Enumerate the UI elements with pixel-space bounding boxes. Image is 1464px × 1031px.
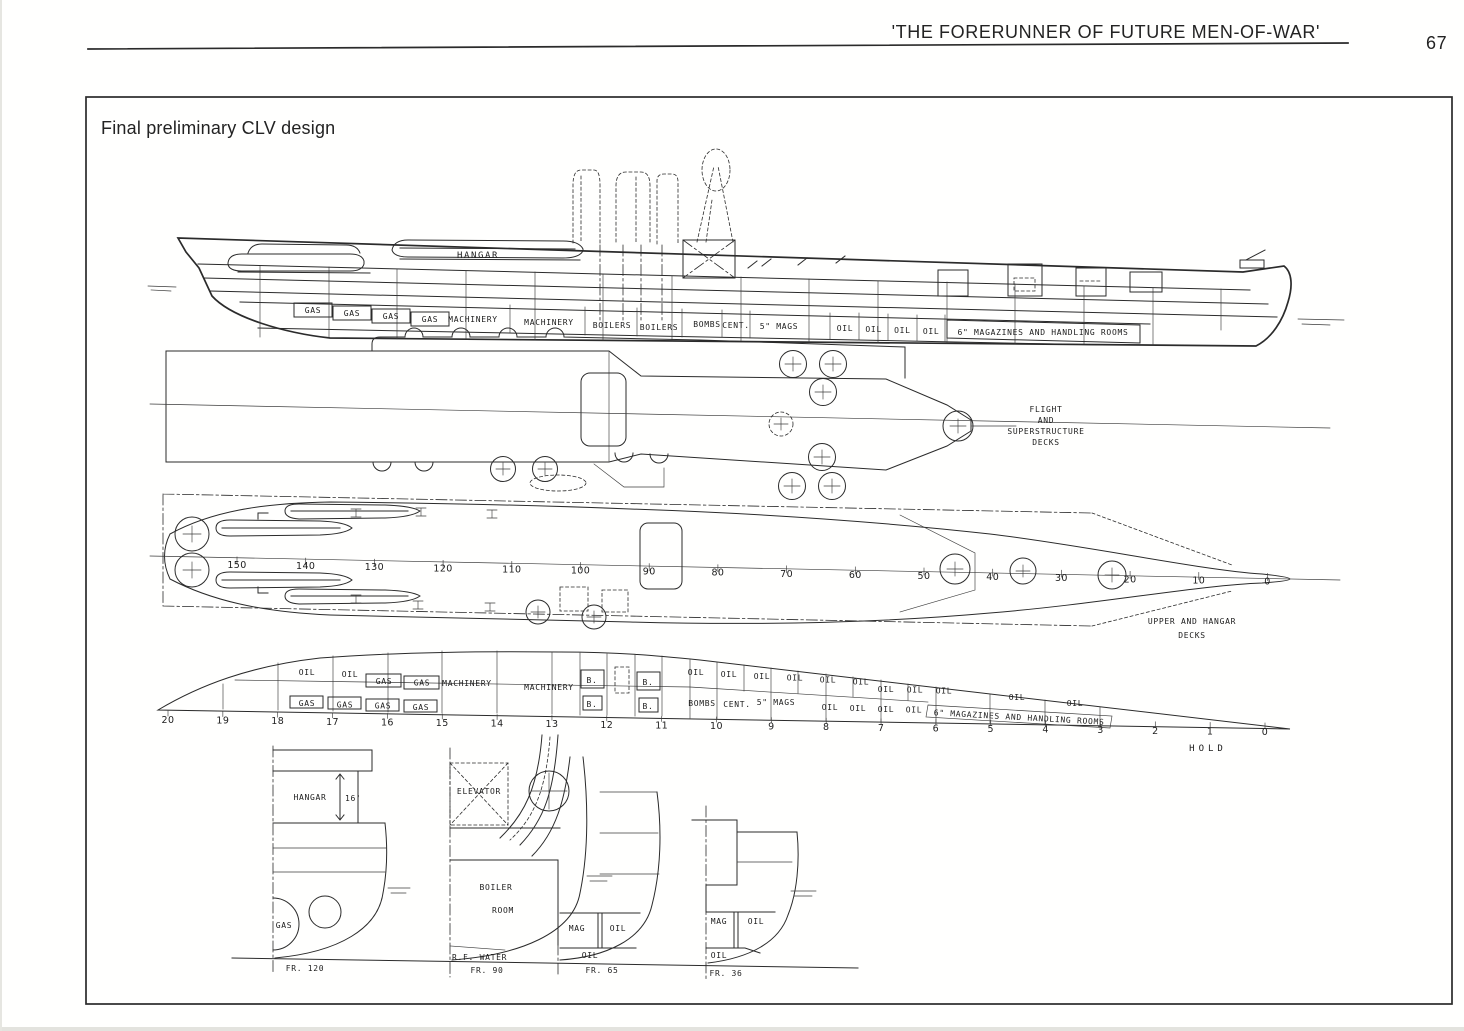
hold-oil-label: OIL	[878, 685, 895, 694]
side-profile-view: HANGAR GASGASGASGAS MACHINERY MACHINERY …	[148, 149, 1344, 346]
hold-oil-label: OIL	[850, 704, 867, 713]
header-rule	[88, 43, 1348, 49]
page-number: 67	[1426, 33, 1447, 53]
profile-machinery-label: MACHINERY	[524, 318, 574, 327]
mast-legs	[697, 166, 733, 242]
frame-number: 110	[502, 564, 521, 575]
hold-oil-label: OIL	[754, 672, 771, 681]
section-frame-label: FR. 36	[709, 969, 742, 978]
hold-gas-label: GAS	[414, 679, 431, 688]
scanned-book-page: 'THE FORERUNNER OF FUTURE MEN-OF-WAR' 67…	[0, 0, 1464, 1031]
hull-plan-outline	[165, 502, 1291, 623]
hold-oil-row1-labels: OILOILOILOILOILOIL	[688, 668, 870, 687]
hold-oil-label: OIL	[688, 668, 705, 677]
section-oil-label: OIL	[711, 951, 728, 960]
section-oil-label: OIL	[610, 924, 627, 933]
section-fr65: MAG OIL OIL FR. 65	[558, 792, 660, 975]
section-fr90: ELEVATOR BOILER ROOM R.F. WATER FR. 90	[450, 735, 612, 977]
section-elevator-label: ELEVATOR	[457, 787, 501, 796]
hold-gas-label: GAS	[337, 700, 354, 709]
hold-gas-label: GAS	[413, 703, 430, 712]
frame-number: 100	[571, 566, 590, 577]
profile-boilers-label: BOILERS	[593, 321, 632, 330]
header-title: 'THE FORERUNNER OF FUTURE MEN-OF-WAR'	[892, 22, 1320, 42]
frame-number: 19	[216, 716, 229, 727]
flight-deck-label: SUPERSTRUCTURE	[1007, 427, 1084, 436]
frame-number: 10	[1192, 575, 1205, 586]
profile-oil-label: OIL	[837, 324, 854, 333]
frame-number: 70	[780, 569, 793, 580]
bow-gun-circles	[940, 554, 1126, 589]
frame-number: 14	[491, 719, 504, 730]
frame-number: 1	[1207, 726, 1213, 737]
frame-number: 120	[433, 563, 452, 574]
hold-plan: OILOIL GASGAS GASGASGASGAS MACHINERY MAC…	[158, 651, 1290, 754]
frame-number: 16	[381, 717, 394, 728]
hold-gas-label: GAS	[299, 699, 316, 708]
profile-oil-label: OIL	[894, 326, 911, 335]
hold-machinery-label: MACHINERY	[442, 679, 492, 688]
profile-gas-label: GAS	[344, 309, 361, 318]
waterline-marks	[148, 286, 1344, 325]
flight-deck-projection	[163, 494, 1092, 626]
superstructure-chevron	[900, 515, 975, 612]
figure-caption: Final preliminary CLV design	[101, 118, 335, 138]
hold-b-label: B.	[586, 700, 597, 709]
hold-oil-label: OIL	[299, 668, 316, 677]
hold-oil-label: OIL	[878, 705, 895, 714]
boats-plan	[216, 504, 420, 604]
profile-hangar-label: HANGAR	[457, 251, 499, 261]
frame-number: 150	[227, 560, 246, 571]
hold-gas-upper-labels: GASGAS	[376, 677, 431, 688]
hold-label: HOLD	[1189, 744, 1227, 754]
flight-deck-plan: FLIGHT AND SUPERSTRUCTURE DECKS	[150, 328, 1330, 500]
masthead-top	[702, 149, 730, 191]
frame-number: 20	[162, 715, 175, 726]
cross-sections: HANGAR 16' GAS FR. 120 ELEVATOR BOILER R…	[232, 735, 858, 981]
profile-gas-label: GAS	[305, 306, 322, 315]
elevator-opening	[581, 373, 626, 446]
hold-oil-row2-labels: OILOILOILOIL	[822, 703, 923, 715]
section-mag-label: MAG	[711, 917, 728, 926]
hold-oil-label: OIL	[721, 670, 738, 679]
hold-cent-label: CENT.	[723, 700, 751, 709]
hold-5in-mags-label: 5" MAGS	[757, 698, 796, 707]
flight-deck-outline	[166, 351, 971, 470]
hold-gas-lower-labels: GASGASGASGAS	[299, 699, 430, 712]
frame-number: 0	[1264, 577, 1270, 588]
frame-number: 3	[1097, 725, 1103, 736]
frame-number: 40	[986, 572, 999, 583]
frame-number: 10	[710, 721, 723, 732]
upper-deck-label: DECKS	[1178, 631, 1206, 640]
section-height-label: 16'	[345, 794, 362, 803]
section-frame-label: FR. 90	[470, 966, 503, 975]
profile-6in-mags-label: 6" MAGAZINES AND HANDLING ROOMS	[957, 328, 1128, 337]
section-gas-label: GAS	[276, 921, 293, 930]
frame-number: 80	[711, 568, 724, 579]
scan-edge-bottom	[0, 1027, 1464, 1031]
hold-oil-label: OIL	[787, 674, 804, 683]
hold-oil-label: OIL	[1009, 693, 1026, 702]
profile-oil-label: OIL	[865, 325, 882, 334]
frame-number: 17	[326, 717, 339, 728]
clv-design-figure: 'THE FORERUNNER OF FUTURE MEN-OF-WAR' 67…	[0, 0, 1464, 1031]
frame-number: 18	[271, 716, 284, 727]
hold-gas-label: GAS	[375, 702, 392, 711]
profile-cent-label: CENT.	[722, 321, 750, 330]
profile-boilers-label: BOILERS	[640, 323, 679, 332]
hold-oil-label: OIL	[936, 686, 953, 695]
hold-bombs-label: BOMBS	[688, 699, 716, 708]
flight-deck-label: FLIGHT	[1029, 405, 1062, 414]
section-rf-water-label: R.F. WATER	[452, 953, 507, 962]
frame-number: 0	[1262, 727, 1268, 738]
hold-machinery-label: MACHINERY	[524, 683, 574, 692]
frame-number: 12	[600, 720, 613, 731]
frame-number: 50	[918, 571, 931, 582]
profile-gas-label: GAS	[422, 315, 439, 324]
upper-deck-label: UPPER AND HANGAR	[1148, 617, 1236, 626]
flight-deck-label: DECKS	[1032, 438, 1060, 447]
profile-gas-label: GAS	[383, 312, 400, 321]
frame-number: 8	[823, 722, 829, 733]
hold-b-lower-labels: B.B.	[586, 700, 653, 711]
profile-bombs-label: BOMBS	[693, 320, 721, 329]
frame-number: 2	[1152, 726, 1158, 737]
hold-b-label: B.	[586, 676, 597, 685]
frame-number: 4	[1042, 725, 1048, 736]
hold-oil-label: OIL	[1067, 699, 1084, 708]
hold-b-label: B.	[642, 702, 653, 711]
hold-b-label: B.	[642, 678, 653, 687]
frame-number: 9	[768, 722, 774, 733]
gun-circles	[491, 351, 974, 500]
frame-number: 20	[1124, 574, 1137, 585]
hold-oil-label: OIL	[906, 706, 923, 715]
centerline	[150, 404, 1330, 428]
section-mag-label: MAG	[569, 924, 586, 933]
frame-number: 15	[436, 718, 449, 729]
frame-number: 6	[933, 723, 939, 734]
profile-machinery-label: MACHINERY	[448, 315, 498, 324]
forecastle-structures	[748, 250, 1265, 296]
frame-number: 13	[546, 719, 559, 730]
funnels-and-mast	[573, 149, 735, 322]
hold-oil-label: OIL	[342, 670, 359, 679]
profile-5in-mags-label: 5" MAGS	[760, 322, 799, 331]
hold-oil-label: OIL	[853, 678, 870, 687]
frame-numbers-hold: 20191817161514131211109876543210	[162, 711, 1269, 738]
section-fr120: HANGAR 16' GAS FR. 120	[273, 746, 410, 974]
section-frame-label: FR. 65	[585, 966, 618, 975]
frame-number: 130	[365, 562, 384, 573]
hold-oil-mid-labels: OILOILOIL	[878, 685, 953, 695]
upper-deck-plan: 1501401301201101009080706050403020100 UP…	[150, 494, 1340, 640]
section-boiler-label: BOILER	[479, 883, 512, 892]
figure-frame	[86, 97, 1452, 1004]
frame-number: 5	[988, 724, 994, 735]
flight-deck-label: AND	[1038, 416, 1055, 425]
section-hangar-label: HANGAR	[293, 793, 326, 802]
section-oil-label: OIL	[748, 917, 765, 926]
hold-oil-label: OIL	[822, 703, 839, 712]
section-boiler-label: ROOM	[492, 906, 514, 915]
hold-oil-label: OIL	[907, 686, 924, 695]
section-oil-label: OIL	[582, 951, 599, 960]
scan-edge-left	[0, 0, 2, 1031]
section-frame-label: FR. 120	[286, 964, 325, 973]
frame-number: 7	[878, 723, 884, 734]
sponson-platform	[594, 464, 664, 487]
hold-oil-label: OIL	[820, 676, 837, 685]
frame-number: 90	[643, 567, 656, 578]
centerline	[150, 556, 1340, 580]
sections-baseline	[232, 958, 858, 968]
midship-gun-circles	[526, 587, 628, 629]
page-header: 'THE FORERUNNER OF FUTURE MEN-OF-WAR' 67	[88, 22, 1447, 53]
frame-number: 60	[849, 570, 862, 581]
frame-number: 140	[296, 561, 315, 572]
frame-number: 11	[655, 720, 668, 731]
profile-oil-label: OIL	[923, 327, 940, 336]
elevator-projection	[640, 523, 682, 589]
hold-oil-aft-labels: OILOIL	[299, 668, 359, 679]
section-fr36: MAG OIL OIL FR. 36	[692, 806, 816, 981]
hold-gas-label: GAS	[376, 677, 393, 686]
frame-number: 30	[1055, 573, 1068, 584]
